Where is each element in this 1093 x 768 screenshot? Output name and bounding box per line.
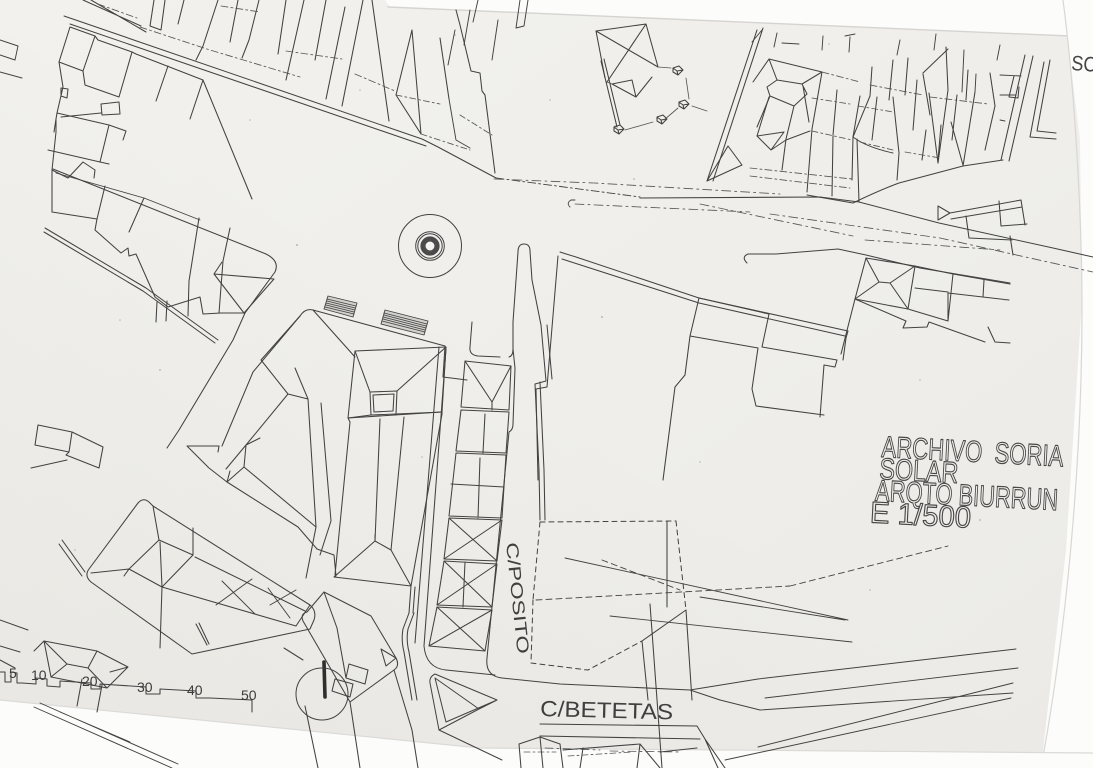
- svg-text:40: 40: [187, 682, 203, 698]
- svg-text:E 1/500: E 1/500: [869, 496, 972, 534]
- svg-text:C/BETETAS: C/BETETAS: [540, 696, 674, 724]
- svg-text:50: 50: [241, 687, 257, 703]
- svg-text:20: 20: [82, 673, 98, 689]
- svg-text:5: 5: [9, 665, 17, 681]
- svg-text:30: 30: [137, 679, 153, 695]
- svg-text:SO: SO: [1071, 52, 1093, 77]
- svg-text:10: 10: [31, 667, 47, 683]
